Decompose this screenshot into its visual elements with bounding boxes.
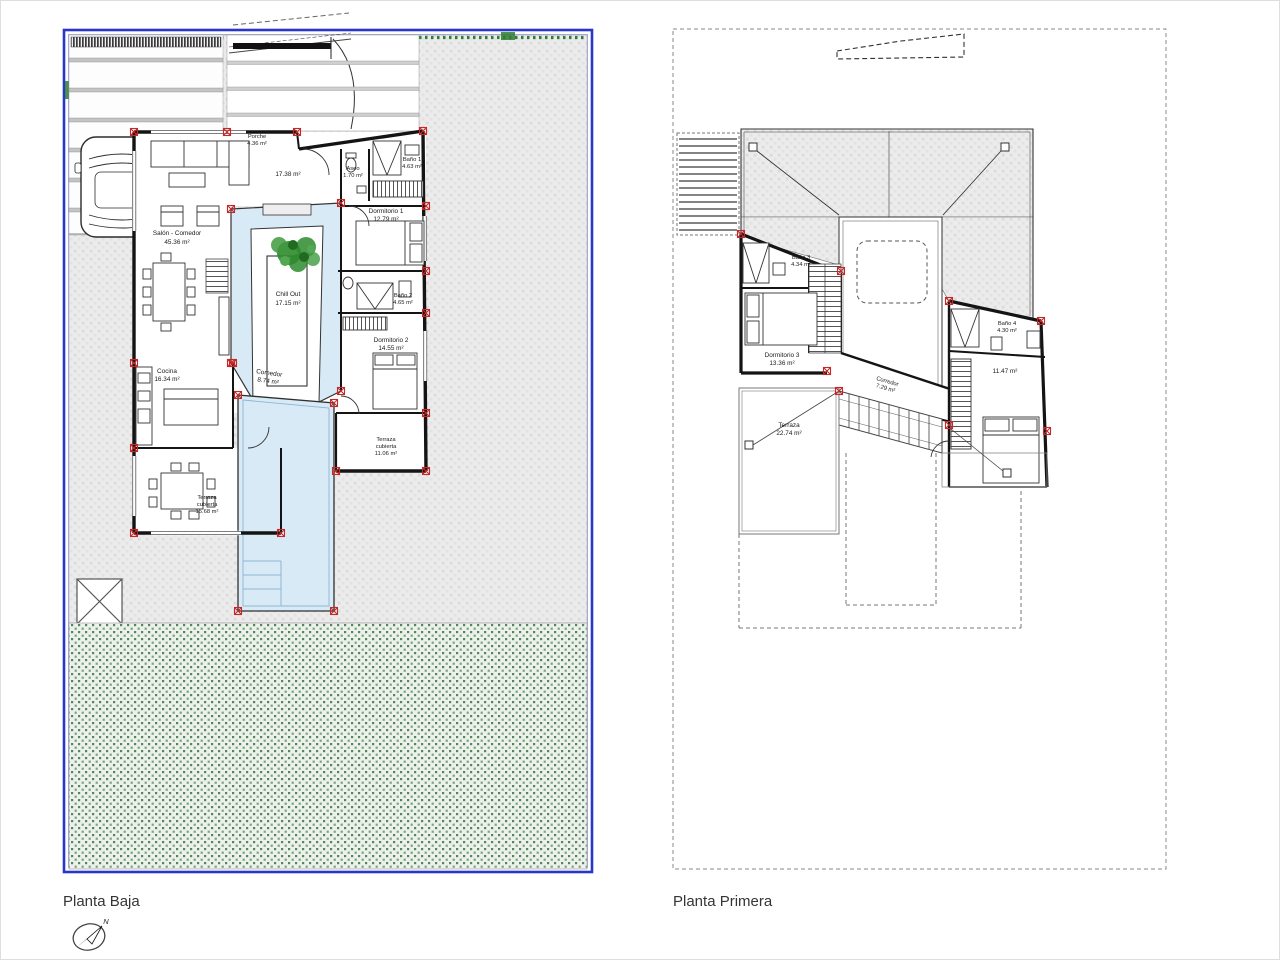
- room-label-porche-area: 4.36 m²: [247, 141, 267, 147]
- room-label-terraza1-area: 15.68 m²: [196, 509, 219, 515]
- north-compass: N: [70, 917, 109, 954]
- room-label-dorm2-area: 14.55 m²: [378, 345, 403, 352]
- cross-square: [77, 579, 122, 624]
- shower: [357, 283, 393, 309]
- floor-plan-drawing: Porche 4.36 m² Salón - Comedor 45.36 m² …: [1, 1, 1280, 960]
- room-label-chillout-name: Chill Out: [276, 291, 301, 298]
- room-label-dorm1-area: 12.79 m²: [373, 216, 398, 223]
- tv-unit: [219, 297, 229, 355]
- coffee-table: [169, 173, 205, 187]
- armchair: [197, 206, 219, 226]
- shower: [373, 141, 401, 175]
- room-label-terraza1-name2: cubierta: [197, 502, 218, 508]
- floor-plan-sheet: Porche 4.36 m² Salón - Comedor 45.36 m² …: [0, 0, 1280, 960]
- room-label-terraza2-name2: cubierta: [376, 444, 397, 450]
- lawn-area: [69, 623, 587, 869]
- room-label-dorm3-area: 13.36 m²: [769, 360, 794, 367]
- room-label-cocina-name: Cocina: [157, 368, 177, 375]
- compass-north-label: N: [103, 917, 109, 926]
- shower: [743, 243, 769, 283]
- room-label-dorm1-name: Dormitorio 1: [369, 208, 404, 215]
- plan-title-first: Planta Primera: [673, 893, 773, 910]
- room-label-hall-area: 17.38 m²: [275, 171, 300, 178]
- sink: [1027, 331, 1040, 348]
- sofa-chaise: [229, 141, 249, 185]
- ramp-edge: [233, 43, 331, 49]
- room-label-chillout-area: 17.15 m²: [275, 300, 300, 307]
- room-label-bano1-name: Baño 1: [403, 157, 421, 163]
- room-label-terraza2-area: 11.06 m²: [375, 451, 398, 457]
- right-block: [931, 301, 1047, 487]
- room-label-bano2-area: 4.65 m²: [393, 300, 413, 306]
- ground-floor-plan: Porche 4.36 m² Salón - Comedor 45.36 m² …: [64, 13, 592, 872]
- stairs: [206, 259, 228, 293]
- room-label-bano3-name: Baño 3: [792, 255, 810, 261]
- room-label-bano3-area: 4.34 m²: [791, 262, 811, 268]
- room-label-terraza-name: Terraza: [778, 422, 800, 429]
- armchair: [161, 206, 183, 226]
- vanity: [373, 181, 423, 197]
- courtyard-bench: [263, 204, 311, 215]
- room-label-terraza-area: 22.74 m²: [776, 430, 801, 437]
- wardrobe: [951, 359, 971, 449]
- room-label-aseo-area: 1.70 m²: [343, 173, 363, 179]
- kitchen-island: [164, 389, 218, 425]
- shower: [951, 309, 979, 347]
- room-label-terraza2-name: Terraza: [376, 437, 396, 443]
- room-label-dorm4-area: 11.47 m²: [993, 368, 1018, 375]
- room-label-salon-name: Salón - Comedor: [153, 230, 202, 237]
- entry-pergola: [677, 133, 739, 235]
- room-label-bano4-area: 4.30 m²: [997, 328, 1017, 334]
- dining-table: [153, 263, 185, 321]
- car-mirror-left: [75, 163, 81, 173]
- room-label-aseo-name: Aseo: [346, 166, 359, 172]
- toilet: [343, 277, 353, 289]
- room-label-bano2-name: Baño 2: [394, 293, 412, 299]
- first-floor-plan: Baño 3 4.34 m² Dormitorio 3 13.36 m² Cor…: [673, 29, 1166, 869]
- pool: [238, 395, 334, 611]
- room-label-terraza1-name: Terraza: [197, 495, 217, 501]
- plan-title-ground: Planta Baja: [63, 893, 140, 910]
- room-label-dorm2-name: Dormitorio 2: [374, 337, 409, 344]
- room-label-dorm3-name: Dormitorio 3: [765, 352, 800, 359]
- sink: [405, 145, 419, 155]
- wardrobe: [343, 317, 387, 330]
- hedge-corner: [501, 32, 515, 40]
- toilet: [991, 337, 1002, 350]
- room-label-porche-name: Porche: [248, 134, 266, 140]
- room-label-bano4-name: Baño 4: [998, 321, 1017, 327]
- room-label-bano1-area: 4.63 m²: [402, 164, 422, 170]
- sink: [357, 186, 366, 193]
- room-label-cocina-area: 16.34 m²: [154, 376, 179, 383]
- room-label-salon-area: 45.36 m²: [164, 239, 189, 246]
- sink: [773, 263, 785, 275]
